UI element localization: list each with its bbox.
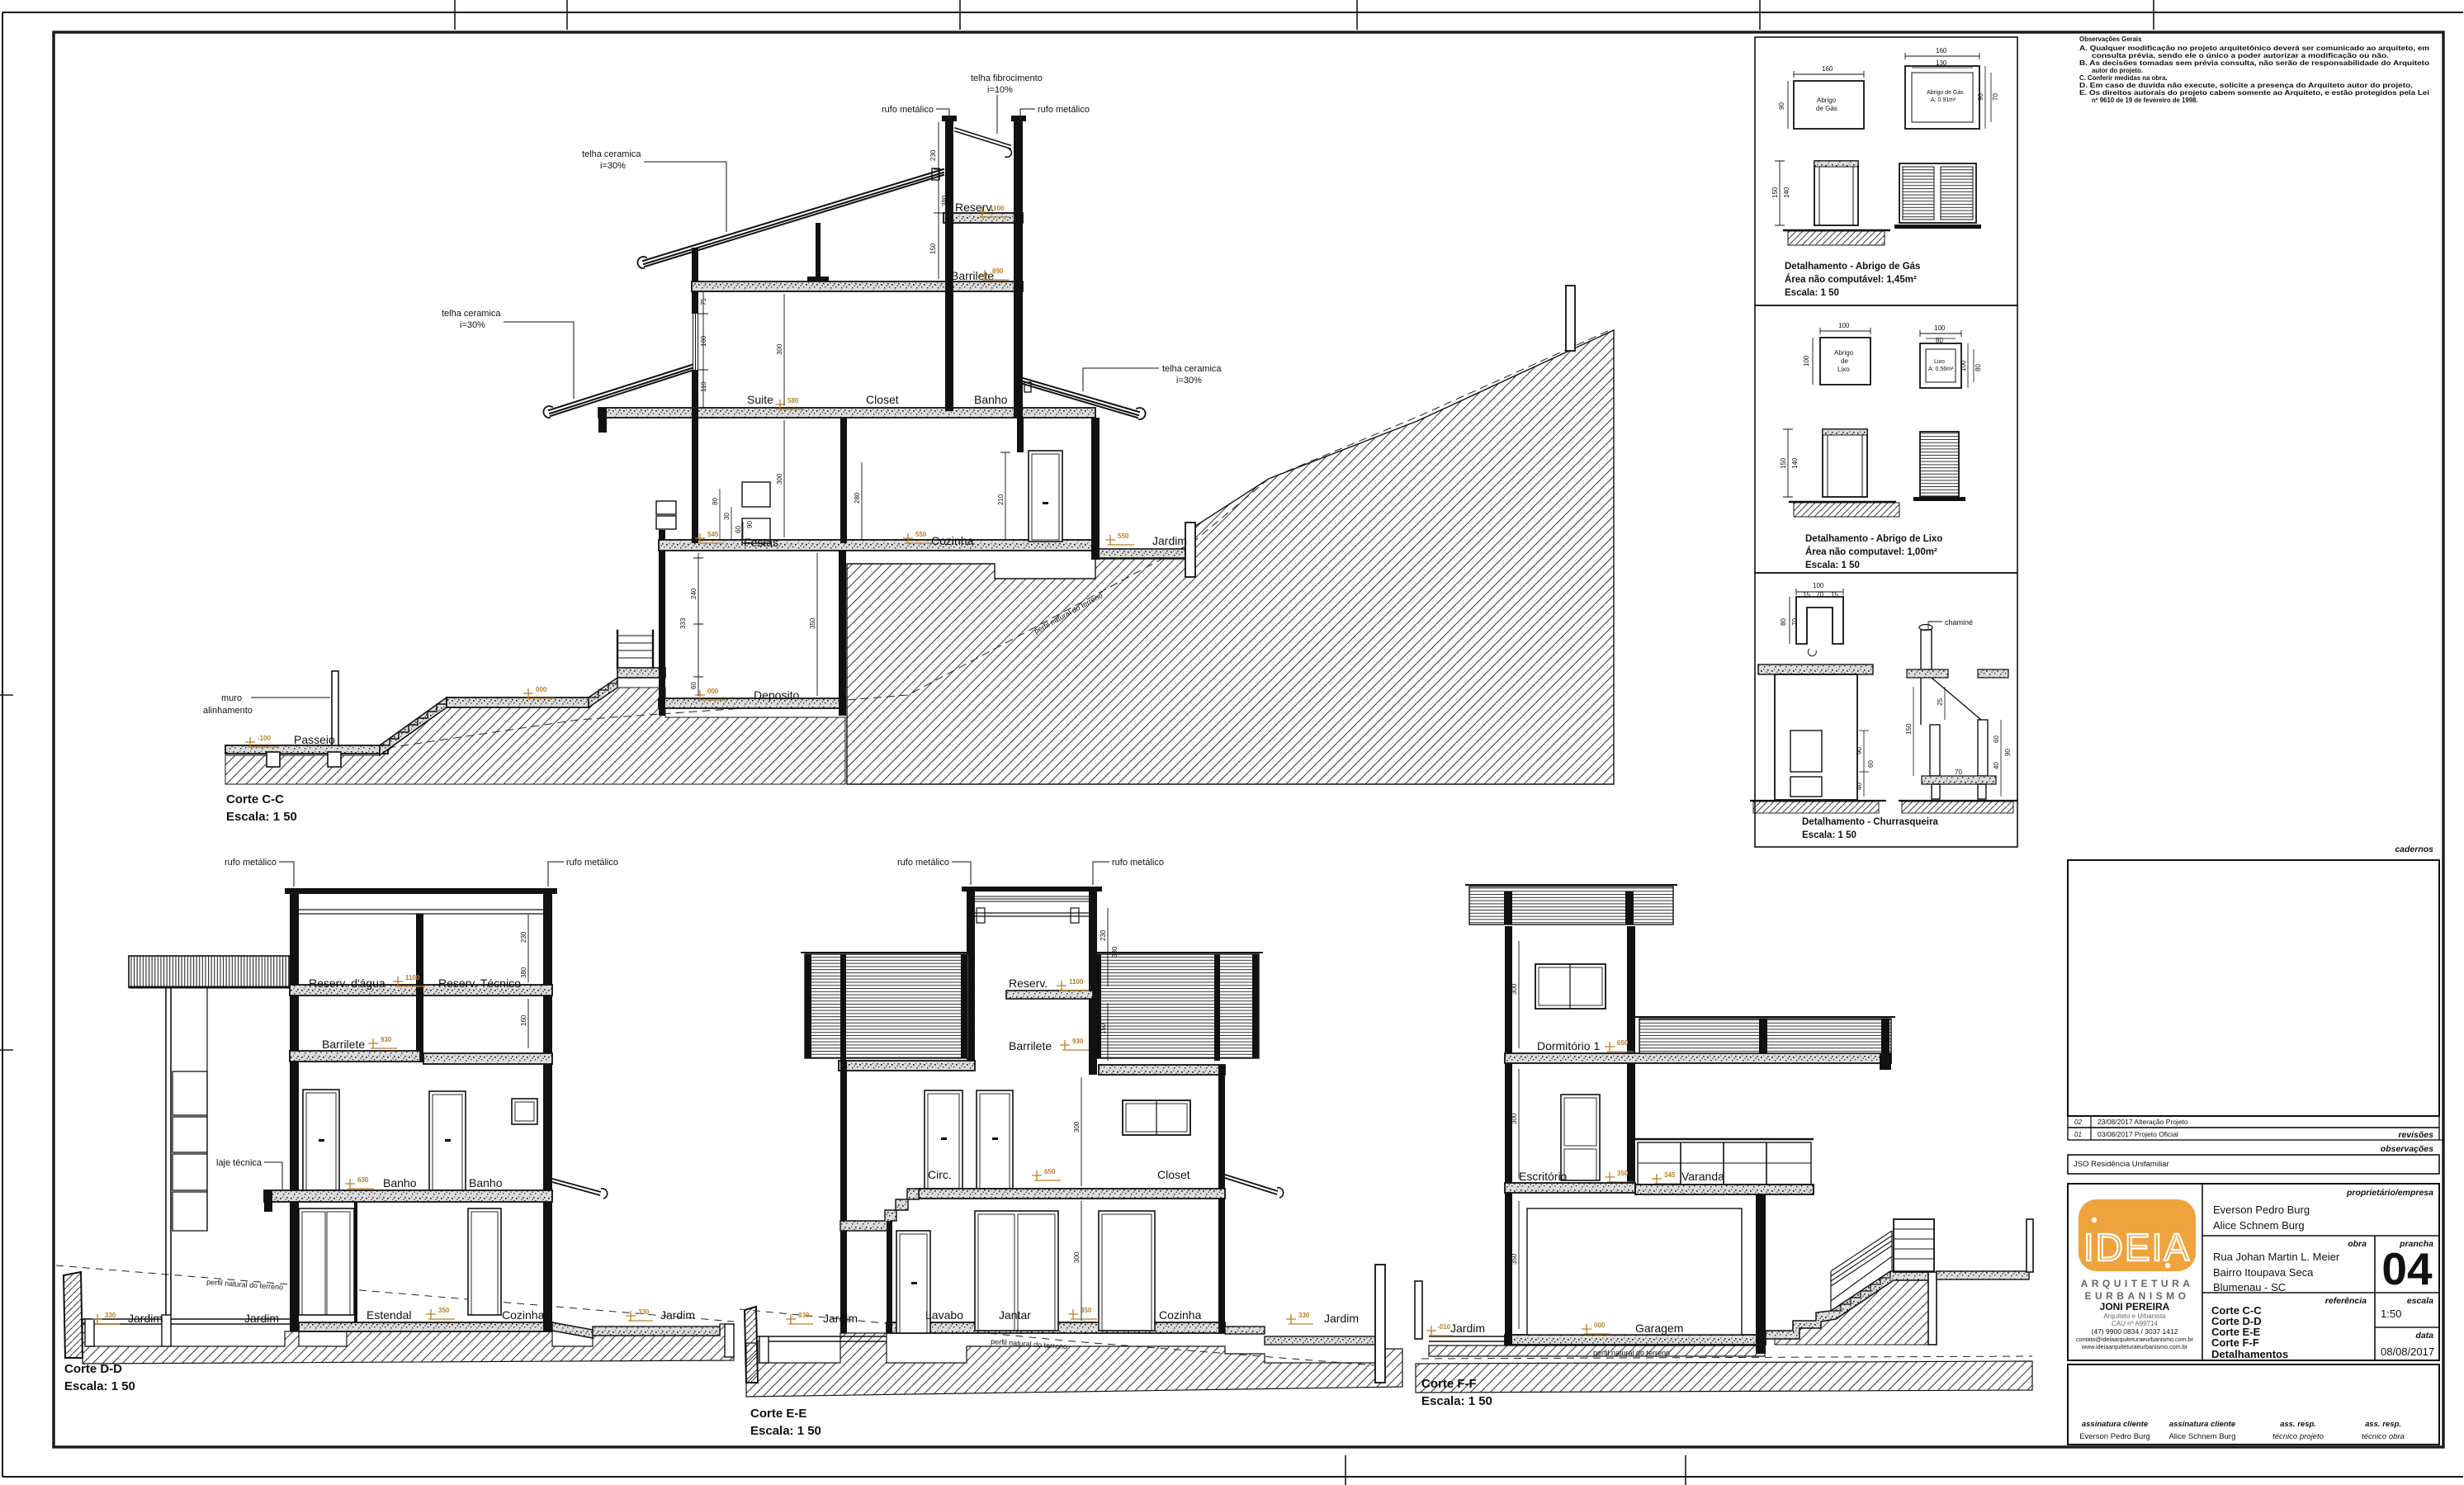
svg-text:140: 140 xyxy=(1791,457,1799,469)
svg-text:Jardim: Jardim xyxy=(244,1312,279,1325)
svg-text:Everson Pedro Burg: Everson Pedro Burg xyxy=(2213,1204,2310,1216)
svg-text:350: 350 xyxy=(1081,1307,1092,1314)
svg-text:Arquiteto e Urbanista: Arquiteto e Urbanista xyxy=(2103,1312,2166,1320)
svg-text:muro: muro xyxy=(221,693,242,703)
svg-text:650: 650 xyxy=(1044,1168,1056,1175)
svg-text:70: 70 xyxy=(1992,93,1999,101)
svg-text:Closet: Closet xyxy=(866,393,899,406)
svg-text:380: 380 xyxy=(941,195,948,206)
svg-text:300: 300 xyxy=(1511,1113,1518,1124)
svg-text:Jardim: Jardim xyxy=(1324,1312,1359,1325)
svg-text:90: 90 xyxy=(1856,747,1863,754)
svg-text:Alice Schnem Burg: Alice Schnem Burg xyxy=(2213,1219,2305,1232)
svg-text:rufo metálico: rufo metálico xyxy=(1112,858,1164,868)
svg-text:Escala: 1 50: Escala: 1 50 xyxy=(1805,560,1860,570)
svg-text:01: 01 xyxy=(2074,1131,2082,1138)
svg-text:Bairro Itoupava Seca: Bairro Itoupava Seca xyxy=(2213,1266,2314,1279)
svg-text:Passeio: Passeio xyxy=(294,733,335,746)
svg-text:Escala: 1 50: Escala: 1 50 xyxy=(1802,830,1856,840)
svg-text:data: data xyxy=(2415,1331,2433,1341)
svg-text:000: 000 xyxy=(536,686,547,693)
svg-text:Escritório: Escritório xyxy=(1519,1170,1568,1183)
svg-text:Escala: 1 50: Escala: 1 50 xyxy=(1421,1394,1492,1408)
svg-text:100: 100 xyxy=(1813,582,1824,589)
svg-text:Corte F-F: Corte F-F xyxy=(1421,1377,1477,1391)
svg-text:contato@ideiaarquiteturaeurban: contato@ideiaarquiteturaeurbanismo.com.b… xyxy=(2076,1336,2194,1343)
svg-text:consulta prévia, sendo ele: consulta prévia, sendo ele o único a pod… xyxy=(2092,52,2389,59)
svg-text:ass. resp.: ass. resp. xyxy=(2365,1420,2401,1429)
svg-text:Festas: Festas xyxy=(744,536,778,549)
svg-text:550: 550 xyxy=(915,531,927,538)
svg-text:03/08/2017 Projeto Oficial: 03/08/2017 Projeto Oficial xyxy=(2097,1130,2178,1138)
svg-text:laje técnica: laje técnica xyxy=(216,1158,262,1168)
svg-text:100: 100 xyxy=(1803,355,1810,367)
svg-text:A: 0.91m²: A: 0.91m² xyxy=(1931,97,1956,103)
svg-text:i=30%: i=30% xyxy=(1176,376,1202,385)
svg-text:assinatura cliente: assinatura cliente xyxy=(2082,1420,2149,1429)
svg-text:380: 380 xyxy=(520,967,527,978)
svg-text:revisões: revisões xyxy=(2398,1130,2433,1140)
svg-text:Estendal: Estendal xyxy=(367,1308,411,1322)
svg-text:330: 330 xyxy=(798,1312,810,1319)
svg-text:140: 140 xyxy=(1783,187,1790,198)
svg-text:(47) 9900 0834 / 3037 1412: (47) 9900 0834 / 3037 1412 xyxy=(2092,1327,2178,1336)
svg-text:70: 70 xyxy=(1791,618,1799,626)
svg-text:cadernos: cadernos xyxy=(2395,844,2433,854)
svg-text:nº 9610 de 19 de fevereir: nº 9610 de 19 de fevereiro de 1998. xyxy=(2092,97,2198,104)
svg-text:150: 150 xyxy=(929,243,937,254)
svg-text:110: 110 xyxy=(700,381,707,392)
svg-text:i=30%: i=30% xyxy=(460,320,485,330)
svg-text:técnico projeto: técnico projeto xyxy=(2272,1432,2324,1441)
svg-text:1100: 1100 xyxy=(1069,978,1084,986)
svg-text:Everson Pedro Burg: Everson Pedro Burg xyxy=(2079,1432,2150,1441)
svg-text:60: 60 xyxy=(1867,760,1875,768)
svg-text:JSO Residência Unifamiliar: JSO Residência Unifamiliar xyxy=(2074,1160,2169,1169)
svg-text:Escala: 1 50: Escala: 1 50 xyxy=(750,1424,821,1438)
svg-text:-100: -100 xyxy=(258,735,272,742)
svg-text:90: 90 xyxy=(2004,749,2012,756)
svg-text:160: 160 xyxy=(520,1014,527,1026)
svg-text:i=30%: i=30% xyxy=(600,161,626,171)
svg-text:Lixo: Lixo xyxy=(1934,359,1945,365)
svg-text:telha ceramica: telha ceramica xyxy=(1162,364,1222,374)
svg-text:280: 280 xyxy=(854,492,861,504)
svg-text:330: 330 xyxy=(1298,1312,1310,1319)
svg-text:25: 25 xyxy=(1937,698,1944,706)
svg-text:técnico obra: técnico obra xyxy=(2362,1432,2405,1441)
svg-text:referência: referência xyxy=(2325,1296,2367,1306)
svg-text:Reserv. d'água: Reserv. d'água xyxy=(309,977,385,990)
svg-text:Jantar: Jantar xyxy=(999,1308,1031,1322)
svg-text:930: 930 xyxy=(381,1036,392,1043)
svg-text:Detalhamentos: Detalhamentos xyxy=(2211,1348,2288,1360)
svg-text:60: 60 xyxy=(690,682,698,689)
svg-text:Abrigo: Abrigo xyxy=(1834,349,1854,357)
svg-text:15: 15 xyxy=(1831,591,1838,598)
svg-text:Cozinha: Cozinha xyxy=(931,534,974,547)
svg-text:Jardim: Jardim xyxy=(823,1312,858,1325)
svg-text:de Gás: de Gás xyxy=(1816,105,1837,112)
svg-text:550: 550 xyxy=(1118,532,1129,540)
svg-text:Detalhamento - Abrigo de L: Detalhamento - Abrigo de Lixo xyxy=(1805,534,1942,544)
svg-text:Jardim: Jardim xyxy=(1152,534,1187,547)
svg-text:Barrilete: Barrilete xyxy=(322,1038,365,1051)
svg-text:160: 160 xyxy=(1936,47,1947,54)
svg-text:15: 15 xyxy=(1803,591,1810,598)
svg-text:A: 0.56m²: A: 0.56m² xyxy=(1928,367,1954,372)
svg-text:1100: 1100 xyxy=(990,205,1005,212)
svg-text:Reserv.: Reserv. xyxy=(1009,977,1048,990)
svg-text:rufo metálico: rufo metálico xyxy=(882,105,934,115)
svg-text:300: 300 xyxy=(1073,1121,1081,1133)
svg-text:de: de xyxy=(1841,357,1848,365)
svg-text:Abrigo: Abrigo xyxy=(1817,97,1837,104)
svg-text:i=10%: i=10% xyxy=(987,85,1013,95)
svg-text:Corte E-E: Corte E-E xyxy=(750,1407,806,1421)
svg-text:100: 100 xyxy=(700,335,707,347)
svg-text:Abrigo de Gás: Abrigo de Gás xyxy=(1927,90,1964,96)
svg-text:Corte F-F: Corte F-F xyxy=(2211,1336,2259,1349)
svg-text:Reserv.: Reserv. xyxy=(955,201,994,214)
svg-text:Suite: Suite xyxy=(747,393,773,406)
svg-text:345: 345 xyxy=(1664,1171,1676,1179)
svg-text:assinatura cliente: assinatura cliente xyxy=(2169,1420,2236,1429)
svg-text:300: 300 xyxy=(776,473,783,485)
svg-text:Jardim: Jardim xyxy=(660,1308,695,1322)
svg-text:80: 80 xyxy=(1780,618,1787,626)
svg-text:150: 150 xyxy=(1905,723,1913,735)
svg-text:JONI PEREIRA: JONI PEREIRA xyxy=(2100,1301,2170,1312)
svg-text:100: 100 xyxy=(1960,360,1967,371)
svg-text:545: 545 xyxy=(707,531,719,538)
svg-text:80: 80 xyxy=(1975,364,1982,371)
svg-text:Circ.: Circ. xyxy=(928,1168,952,1181)
svg-text:890: 890 xyxy=(992,267,1004,275)
svg-text:IDEIA: IDEIA xyxy=(2083,1226,2191,1269)
svg-text:Detalhamento - Churrasqueira: Detalhamento - Churrasqueira xyxy=(1802,817,1938,827)
svg-text:130: 130 xyxy=(1936,59,1947,67)
svg-text:75: 75 xyxy=(700,298,707,305)
svg-text:350: 350 xyxy=(1511,1253,1518,1265)
svg-text:Reserv. Técnico: Reserv. Técnico xyxy=(438,977,521,990)
svg-text:330: 330 xyxy=(105,1312,116,1319)
svg-text:Deposito: Deposito xyxy=(754,688,799,702)
svg-text:Cozinha: Cozinha xyxy=(502,1308,545,1322)
svg-text:210: 210 xyxy=(997,494,1005,505)
svg-text:C. Conferir medidas na obr: C. Conferir medidas na obra. xyxy=(2079,74,2168,82)
svg-text:70: 70 xyxy=(1816,591,1823,598)
svg-text:300: 300 xyxy=(1511,983,1518,995)
svg-text:obra: obra xyxy=(2348,1239,2367,1249)
svg-text:100: 100 xyxy=(1838,322,1850,329)
svg-text:Jardim: Jardim xyxy=(128,1312,163,1325)
svg-text:150: 150 xyxy=(1771,187,1779,198)
svg-text:300: 300 xyxy=(1073,1251,1081,1263)
svg-text:Closet: Closet xyxy=(1157,1168,1190,1181)
svg-text:ass. resp.: ass. resp. xyxy=(2280,1420,2316,1429)
svg-text:Varanda: Varanda xyxy=(1681,1170,1724,1183)
svg-text:930: 930 xyxy=(1072,1038,1084,1045)
svg-text:08/08/2017: 08/08/2017 xyxy=(2381,1345,2434,1358)
svg-text:chaminé: chaminé xyxy=(1945,618,1973,627)
svg-text:proprietário/empresa: proprietário/empresa xyxy=(2346,1188,2433,1198)
svg-text:rufo metálico: rufo metálico xyxy=(225,858,277,868)
svg-text:40: 40 xyxy=(1993,762,2000,769)
svg-text:70: 70 xyxy=(1955,769,1962,776)
svg-text:Detalhamento - Abrigo de G: Detalhamento - Abrigo de Gás xyxy=(1785,262,1920,272)
svg-text:100: 100 xyxy=(1934,324,1946,332)
svg-text:Área não computável: 1,45m²: Área não computável: 1,45m² xyxy=(1785,274,1917,285)
svg-text:380: 380 xyxy=(1111,946,1118,958)
svg-text:350: 350 xyxy=(1617,1170,1629,1177)
svg-text:230: 230 xyxy=(1100,929,1107,941)
svg-text:perfil natural do terreno: perfil natural do terreno xyxy=(1593,1349,1670,1357)
svg-text:60: 60 xyxy=(735,526,742,533)
svg-text:telha fibrocimento: telha fibrocimento xyxy=(971,73,1043,83)
svg-text:230: 230 xyxy=(929,149,937,161)
svg-text:90: 90 xyxy=(746,521,754,528)
svg-text:Alice Schnem Burg: Alice Schnem Burg xyxy=(2169,1432,2236,1441)
svg-text:80: 80 xyxy=(712,498,719,505)
svg-text:1100: 1100 xyxy=(405,974,420,981)
svg-text:Lixo: Lixo xyxy=(1837,366,1850,373)
svg-text:escala: escala xyxy=(2407,1296,2433,1306)
svg-text:Escala: 1 50: Escala: 1 50 xyxy=(1785,288,1839,298)
svg-text:300: 300 xyxy=(776,343,783,355)
svg-text:alinhamento: alinhamento xyxy=(203,706,253,716)
svg-text:150: 150 xyxy=(1100,1023,1107,1034)
svg-text:Lavabo: Lavabo xyxy=(925,1308,963,1322)
svg-text:B. As decisões tomadas sem: B. As decisões tomadas sem prévia consul… xyxy=(2079,59,2429,67)
svg-text:350: 350 xyxy=(438,1307,450,1314)
svg-text:150: 150 xyxy=(1780,457,1787,469)
svg-text:160: 160 xyxy=(1822,65,1833,73)
svg-text:Área não computavel: 1,00m²: Área não computavel: 1,00m² xyxy=(1805,546,1937,557)
svg-text:330: 330 xyxy=(638,1308,650,1316)
svg-text:30: 30 xyxy=(723,513,731,520)
svg-text:04: 04 xyxy=(2381,1243,2433,1294)
svg-text:Jardim: Jardim xyxy=(1450,1322,1485,1335)
svg-text:Banho: Banho xyxy=(469,1176,503,1189)
svg-text:650: 650 xyxy=(1617,1039,1629,1047)
svg-text:Banho: Banho xyxy=(383,1176,417,1189)
svg-text:230: 230 xyxy=(520,931,527,943)
svg-text:Escala: 1 50: Escala: 1 50 xyxy=(226,810,297,824)
svg-text:Observações Gerais: Observações Gerais xyxy=(2079,35,2142,43)
svg-text:Corte D-D: Corte D-D xyxy=(64,1362,122,1376)
svg-text:000: 000 xyxy=(1594,1322,1606,1329)
svg-text:Blumenau - SC: Blumenau - SC xyxy=(2213,1281,2286,1293)
svg-text:Dormitório 1: Dormitório 1 xyxy=(1537,1039,1600,1052)
svg-text:ARQUITETURA: ARQUITETURA xyxy=(2081,1278,2194,1289)
svg-text:E. Os direitos autorais do: E. Os direitos autorais do projeto cabem… xyxy=(2079,89,2429,97)
svg-text:333: 333 xyxy=(679,617,687,629)
svg-text:90: 90 xyxy=(1778,102,1785,110)
svg-text:www.ideiaarquiteturaeurbanismo: www.ideiaarquiteturaeurbanismo.com.br xyxy=(2081,1343,2188,1350)
svg-text:Banho: Banho xyxy=(974,393,1008,406)
svg-text:Cozinha: Cozinha xyxy=(1159,1308,1202,1322)
svg-text:CAU nº A99714: CAU nº A99714 xyxy=(2112,1320,2158,1327)
svg-text:D. Em caso de duvida não: D. Em caso de duvida não execute, solici… xyxy=(2079,82,2413,89)
svg-text:rufo metálico: rufo metálico xyxy=(897,858,949,868)
svg-text:autor do projeto.: autor do projeto. xyxy=(2092,67,2143,74)
svg-text:630: 630 xyxy=(357,1176,369,1184)
svg-text:580: 580 xyxy=(787,397,799,404)
svg-text:rufo metálico: rufo metálico xyxy=(1038,105,1090,115)
svg-text:1:50: 1:50 xyxy=(2381,1308,2401,1320)
svg-text:Escala: 1 50: Escala: 1 50 xyxy=(64,1379,135,1393)
svg-text:350: 350 xyxy=(809,617,816,629)
svg-text:23/08/2017 Alteração Projet: 23/08/2017 Alteração Projeto xyxy=(2097,1118,2188,1126)
svg-text:000: 000 xyxy=(707,688,719,695)
svg-text:60: 60 xyxy=(1993,735,2000,743)
svg-text:Barrilete: Barrilete xyxy=(1009,1039,1052,1052)
svg-text:80: 80 xyxy=(1936,337,1943,344)
svg-text:A. Qualquer modificação no: A. Qualquer modificação no projeto arqui… xyxy=(2079,45,2429,52)
svg-text:rufo metálico: rufo metálico xyxy=(566,858,618,868)
svg-text:240: 240 xyxy=(690,588,698,599)
svg-text:telha ceramica: telha ceramica xyxy=(582,149,641,159)
svg-text:02: 02 xyxy=(2074,1118,2082,1126)
svg-text:-010: -010 xyxy=(1437,1323,1451,1331)
svg-text:Corte C-C: Corte C-C xyxy=(226,792,284,806)
svg-text:observações: observações xyxy=(2381,1144,2433,1154)
svg-text:EURBANISMO: EURBANISMO xyxy=(2084,1290,2189,1302)
svg-text:90: 90 xyxy=(1977,93,1984,101)
svg-text:Rua Johan Martin L. Meier: Rua Johan Martin L. Meier xyxy=(2213,1251,2340,1263)
svg-text:Garagem: Garagem xyxy=(1635,1322,1683,1335)
svg-text:telha ceramica: telha ceramica xyxy=(442,309,501,319)
svg-text:40: 40 xyxy=(1856,783,1863,790)
